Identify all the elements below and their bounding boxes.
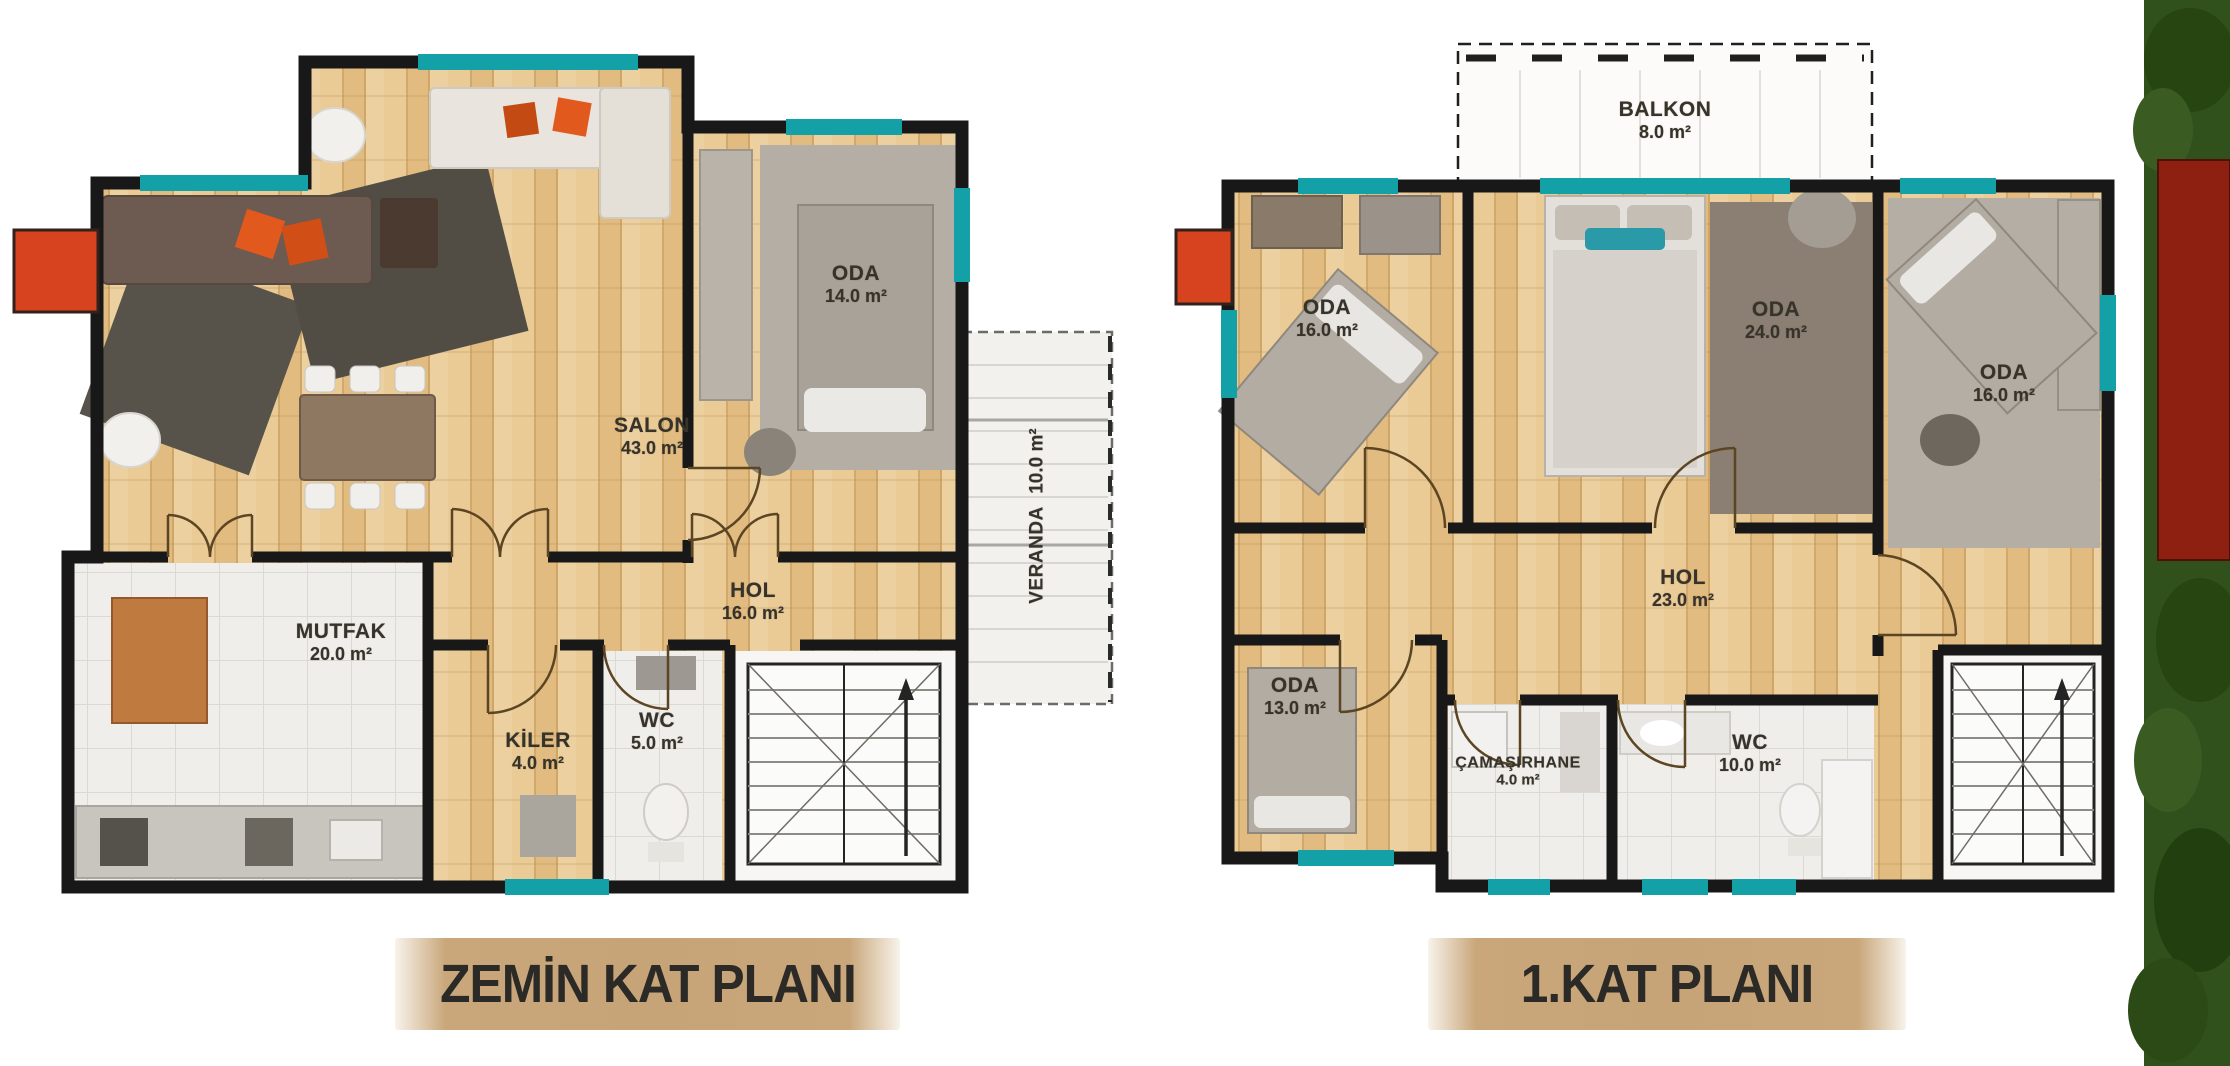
cushion — [552, 97, 591, 136]
side-table — [380, 198, 438, 268]
sofa — [600, 88, 670, 218]
chimney — [1176, 230, 1232, 304]
blanket — [1553, 250, 1697, 468]
room-area: 20.0 m² — [296, 644, 387, 664]
toilet-tank — [648, 842, 684, 862]
room-area: 14.0 m² — [825, 286, 887, 306]
room-label-balkon: BALKON 8.0 m² — [1619, 98, 1712, 142]
cooktop — [245, 818, 293, 866]
room-label-oda-3: ODA 16.0 m² — [1973, 361, 2035, 405]
room-label-salon: SALON 43.0 m² — [614, 414, 690, 458]
room-name: ODA — [1264, 674, 1326, 698]
chair — [305, 366, 335, 392]
sink — [1640, 720, 1684, 746]
room-name: ÇAMAŞIRHANE — [1455, 755, 1581, 773]
first-floor-title-band: 1.KAT PLANI — [1428, 938, 1906, 1030]
pillow — [1254, 796, 1350, 828]
room-area: 10.0 m² — [1719, 755, 1781, 775]
room-name: WC — [631, 709, 683, 733]
room-label-oda-2: ODA 24.0 m² — [1745, 298, 1807, 342]
room-label-oda-1: ODA 16.0 m² — [1296, 296, 1358, 340]
chimney — [14, 230, 98, 312]
armchair — [1920, 414, 1980, 466]
sofa — [102, 196, 372, 284]
oven — [100, 818, 148, 866]
room-name: ODA — [825, 262, 887, 286]
room-name: ODA — [1973, 361, 2035, 385]
room-area: 13.0 m² — [1264, 698, 1326, 718]
room-area: 8.0 m² — [1619, 122, 1712, 142]
room-name: MUTFAK — [296, 620, 387, 644]
scenery-strip — [2128, 0, 2230, 1066]
room-label-camasirhane: ÇAMAŞIRHANE 4.0 m² — [1455, 755, 1581, 790]
room-area: 10.0 m² — [1026, 428, 1047, 493]
armchair — [305, 108, 365, 162]
room-name: ODA — [1745, 298, 1807, 322]
shower — [1822, 760, 1872, 878]
room-label-wc-1: WC 10.0 m² — [1719, 731, 1781, 775]
room-label-oda-4: ODA 13.0 m² — [1264, 674, 1326, 718]
room-name: WC — [1719, 731, 1781, 755]
chair — [350, 366, 380, 392]
pillow — [1585, 228, 1665, 250]
room-area: 43.0 m² — [614, 438, 690, 458]
first-floor-title: 1.KAT PLANI — [1521, 953, 1814, 1015]
room-name: VERANDA — [1026, 506, 1047, 603]
chair — [395, 366, 425, 392]
room-name: HOL — [1652, 566, 1714, 590]
toilet — [1780, 784, 1820, 836]
chair — [395, 483, 425, 509]
room-label-veranda: VERANDA 10.0 m² — [1026, 428, 1047, 603]
cushion — [281, 218, 328, 265]
armchair — [100, 413, 160, 467]
ground-floor-title: ZEMİN KAT PLANI — [440, 953, 856, 1015]
wardrobe — [1252, 196, 1342, 248]
room-area: 16.0 m² — [1973, 385, 2035, 405]
sink — [330, 820, 382, 860]
chair — [305, 483, 335, 509]
kitchen-table — [112, 598, 207, 723]
shelf — [520, 795, 576, 857]
room-name: HOL — [722, 579, 784, 603]
armchair — [1788, 188, 1856, 248]
room-area: 24.0 m² — [1745, 322, 1807, 342]
staircase — [1952, 664, 2094, 864]
room-area: 4.0 m² — [505, 753, 571, 773]
room-label-hol: HOL 16.0 m² — [722, 579, 784, 623]
pillow — [804, 388, 926, 432]
floor-plans-drawing — [0, 0, 2230, 1066]
room-area: 4.0 m² — [1455, 773, 1581, 790]
room-label-kiler: KİLER 4.0 m² — [505, 729, 571, 773]
room-area: 16.0 m² — [1296, 320, 1358, 340]
ground-floor-title-band: ZEMİN KAT PLANI — [395, 938, 900, 1030]
room-name: ODA — [1296, 296, 1358, 320]
red-wall-block — [2158, 160, 2230, 560]
washbasin — [636, 656, 696, 690]
first-floor-plan — [1176, 44, 2116, 895]
room-area: 23.0 m² — [1652, 590, 1714, 610]
floor-plans-image: ODA 14.0 m² SALON 43.0 m² HOL 16.0 m² MU… — [0, 0, 2230, 1066]
room-label-mutfak: MUTFAK 20.0 m² — [296, 620, 387, 664]
room-name: KİLER — [505, 729, 571, 753]
room-name: BALKON — [1619, 98, 1712, 122]
dresser — [1360, 196, 1440, 254]
room-label-hol-1: HOL 23.0 m² — [1652, 566, 1714, 610]
chair — [350, 483, 380, 509]
room-label-oda: ODA 14.0 m² — [825, 262, 887, 306]
room-area: 5.0 m² — [631, 733, 683, 753]
room-name: SALON — [614, 414, 690, 438]
room-area: 16.0 m² — [722, 603, 784, 623]
wardrobe — [700, 150, 752, 400]
room-label-wc: WC 5.0 m² — [631, 709, 683, 753]
dining-table — [300, 395, 435, 480]
staircase — [748, 664, 940, 864]
cushion — [503, 102, 539, 138]
toilet — [644, 784, 688, 840]
